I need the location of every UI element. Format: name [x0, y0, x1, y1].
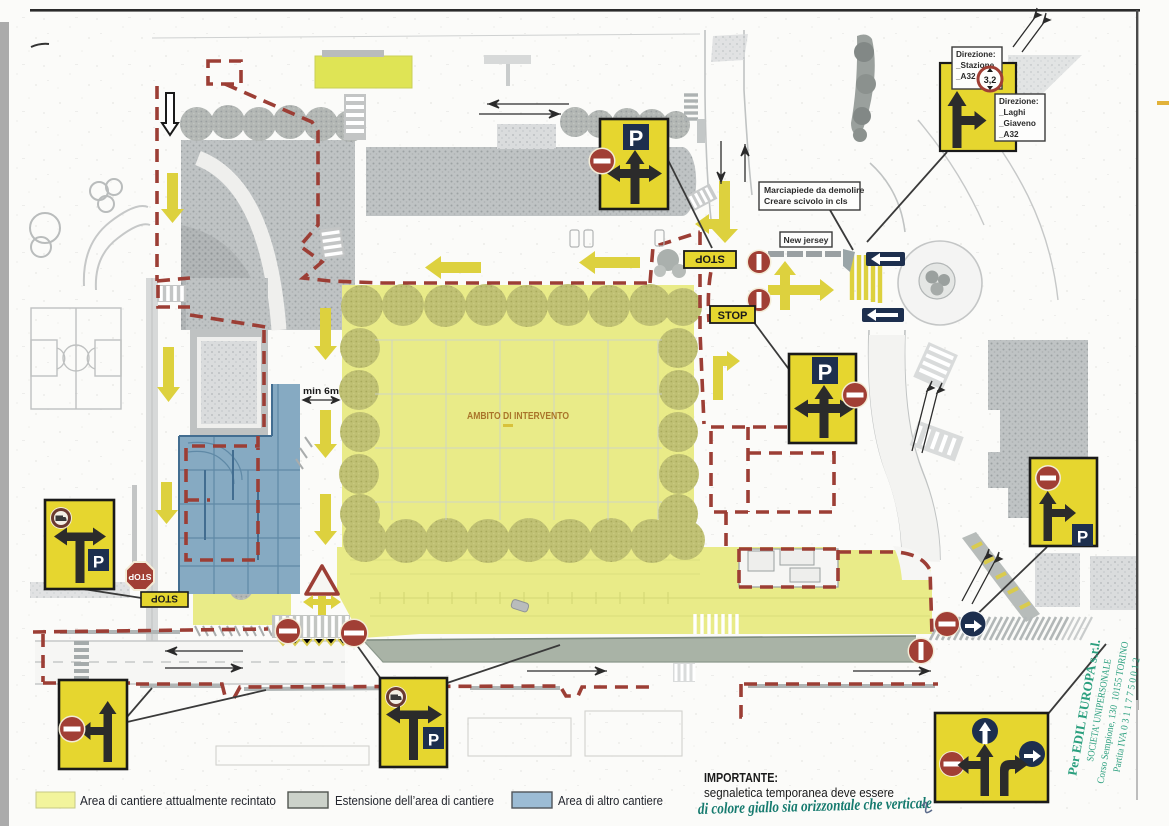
svg-text:_A32: _A32 — [955, 72, 976, 81]
svg-text:3,2: 3,2 — [984, 75, 997, 85]
svg-text:min 6m: min 6m — [303, 386, 339, 397]
svg-text:P: P — [1077, 528, 1088, 547]
svg-text:STOP: STOP — [695, 253, 725, 265]
svg-text:STOP: STOP — [718, 310, 748, 322]
svg-text:Marciapiede da demolire: Marciapiede da demolire — [764, 185, 865, 195]
svg-text:_Laghi: _Laghi — [998, 108, 1025, 117]
svg-text:P: P — [93, 553, 104, 572]
svg-text:STOP: STOP — [128, 572, 151, 582]
svg-text:Estensione dell’area di cantie: Estensione dell’area di cantiere — [335, 793, 494, 808]
svg-text:Direzione:: Direzione: — [956, 50, 996, 59]
svg-text:AMBITO DI INTERVENTO: AMBITO DI INTERVENTO — [467, 411, 569, 422]
svg-text:_A32: _A32 — [998, 130, 1019, 139]
svg-text:P: P — [629, 126, 644, 151]
svg-text:Area di cantiere attualmente r: Area di cantiere attualmente recintato — [80, 793, 276, 808]
svg-text:P: P — [428, 731, 439, 750]
svg-text:P: P — [818, 360, 833, 385]
svg-text:_Giaveno: _Giaveno — [998, 119, 1036, 128]
svg-text:IMPORTANTE:: IMPORTANTE: — [704, 771, 778, 785]
svg-text:Direzione:: Direzione: — [999, 97, 1039, 106]
svg-text:STOP: STOP — [151, 593, 178, 604]
svg-text:Area di altro cantiere: Area di altro cantiere — [558, 793, 663, 808]
svg-text:Creare scivolo in cls: Creare scivolo in cls — [764, 196, 848, 206]
svg-text:New jersey: New jersey — [784, 235, 829, 245]
